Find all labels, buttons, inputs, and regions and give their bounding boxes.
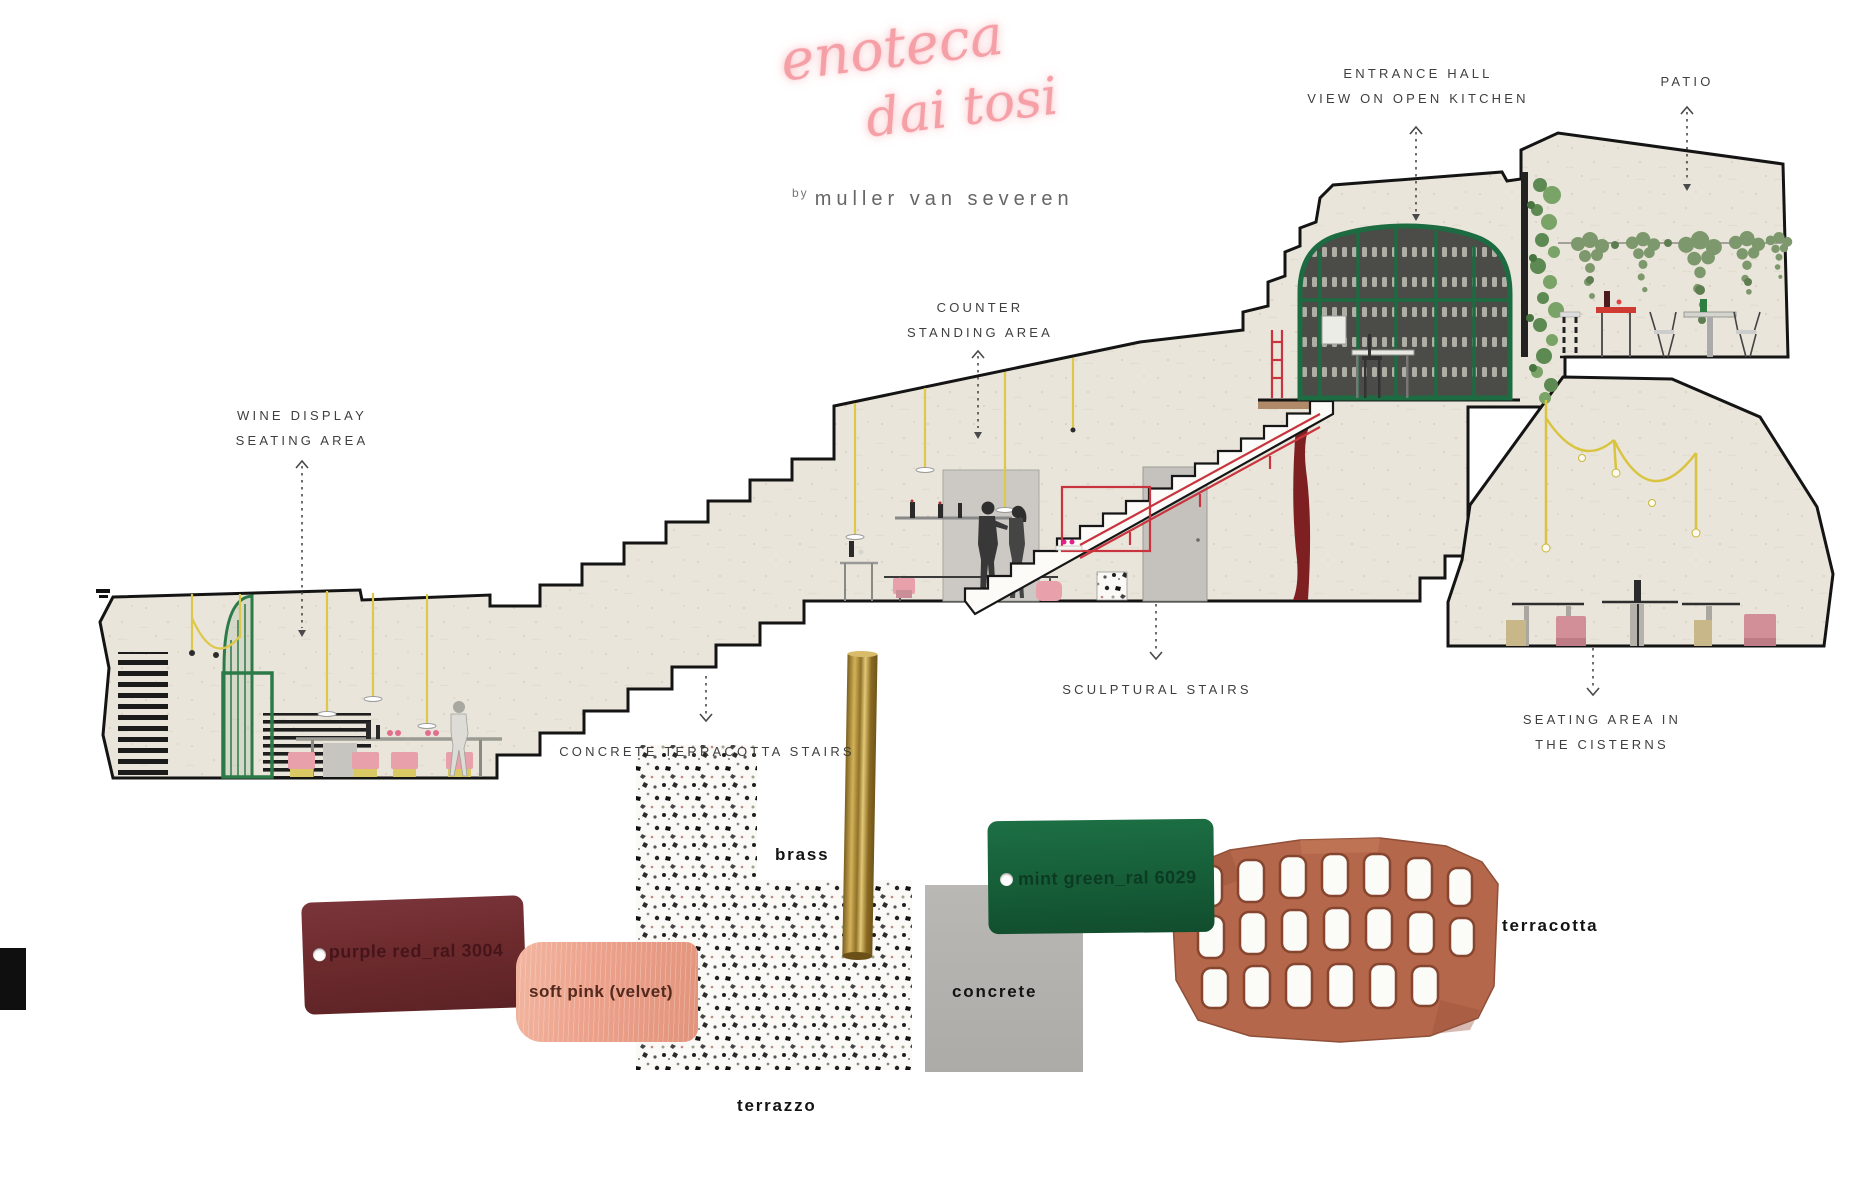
label-entrance-hall: ENTRANCE HALL VIEW ON OPEN KITCHEN [1307, 62, 1528, 111]
label-patio: PATIO [1660, 70, 1713, 95]
label-counter: COUNTER STANDING AREA [907, 296, 1053, 345]
byline-author: muller van severen [815, 188, 1074, 210]
card-hole-icon [313, 948, 326, 961]
label-concrete-terracotta-stairs: CONCRETE TERRACOTTA STAIRS [559, 740, 855, 765]
swatch-soft-pink-velvet: soft pink (velvet) [516, 942, 698, 1042]
label-terracotta: terracotta [1502, 916, 1598, 936]
building-section [100, 133, 1833, 778]
label-sculptural-stairs: SCULPTURAL STAIRS [1062, 678, 1252, 703]
label-brass: brass [775, 845, 829, 865]
label-soft-pink: soft pink (velvet) [529, 982, 673, 1002]
kitchen-appliance [1322, 316, 1346, 344]
label-mint-green: mint green_ral 6029 [1018, 867, 1197, 890]
label-concrete: concrete [952, 982, 1037, 1002]
label-cisterns: SEATING AREA IN THE CISTERNS [1523, 708, 1681, 757]
card-hole-icon [1000, 873, 1013, 886]
label-purple-red: purple red_ral 3004 [329, 940, 504, 963]
byline: bymuller van severen [792, 186, 1074, 211]
section-drawing [0, 0, 1872, 1200]
label-terrazzo: terrazzo [737, 1096, 817, 1116]
brass-tube [842, 651, 877, 960]
black-swatch-partial [0, 948, 26, 1010]
terracotta-brick [1172, 838, 1498, 1042]
swatch-card-purple-red: purple red_ral 3004 [301, 895, 527, 1015]
swatch-card-mint-green: mint green_ral 6029 [987, 819, 1214, 934]
patio-wall-cut [1521, 172, 1528, 357]
pink-pouf [1036, 581, 1062, 601]
wine-rack-left [118, 652, 168, 778]
presentation-board: enoteca dai tosi bymuller van severen WI… [0, 0, 1872, 1200]
table-cabinet [323, 743, 357, 777]
byline-prefix: by [792, 186, 809, 200]
label-wine-display: WINE DISPLAY SEATING AREA [236, 404, 369, 453]
terrazzo-step-block [1097, 572, 1127, 600]
